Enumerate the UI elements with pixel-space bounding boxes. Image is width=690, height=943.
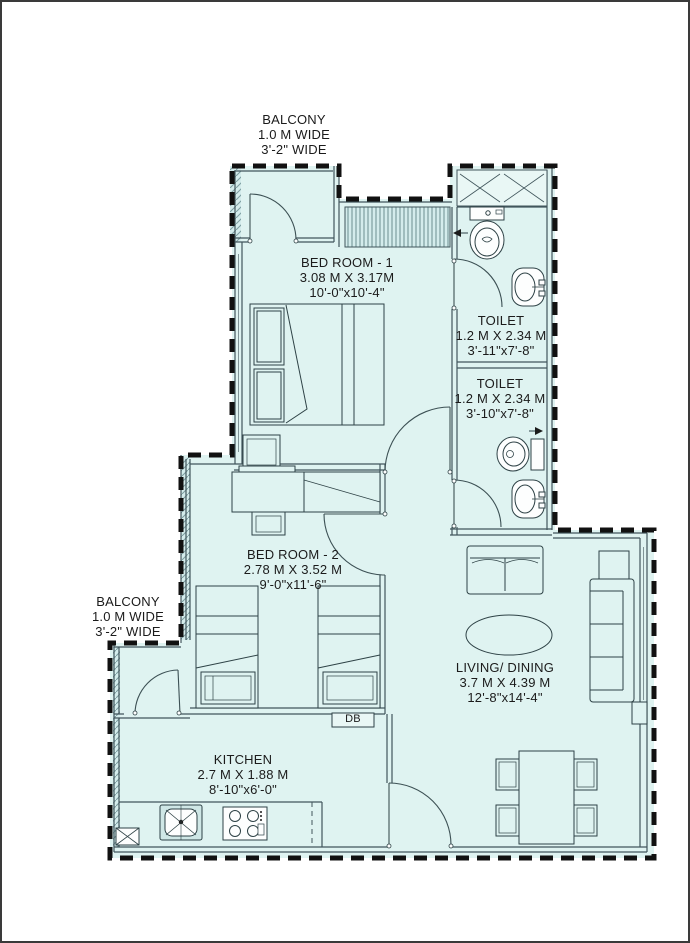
room-size-imperial: 3'-2" WIDE: [48, 624, 208, 639]
hob-icon: [223, 807, 267, 840]
dining-table: [519, 751, 574, 844]
loveseat-sofa: [467, 546, 543, 594]
room-name: TOILET: [430, 376, 570, 391]
room-size-metric: 1.2 M X 2.34 M: [431, 328, 571, 343]
room-size-imperial: 9'-0"x11'-6": [213, 577, 373, 592]
room-name: KITCHEN: [163, 752, 323, 767]
wall-ledge: [632, 702, 647, 724]
side-table: [599, 551, 629, 579]
dresser: [232, 466, 380, 512]
basin-icon-bottom: [512, 480, 545, 518]
duct-box-icon: [116, 828, 139, 845]
room-size-metric: 3.08 M X 3.17M: [267, 270, 427, 285]
kitchen-label: KITCHEN 2.7 M X 1.88 M 8'-10"x6'-0": [163, 752, 323, 797]
room-size-metric: 2.7 M X 1.88 M: [163, 767, 323, 782]
room-name: BALCONY: [48, 594, 208, 609]
basin-icon-top: [512, 268, 545, 306]
room-size-imperial: 12'-8"x14'-4": [425, 690, 585, 705]
toilet1-label: TOILET 1.2 M X 2.34 M 3'-11"x7'-8": [431, 313, 571, 358]
balcony-left-label: BALCONY 1.0 M WIDE 3'-2" WIDE: [48, 594, 208, 639]
room-size-metric: 3.7 M X 4.39 M: [425, 675, 585, 690]
bedside-table: [243, 435, 280, 469]
bedroom2-label: BED ROOM - 2 2.78 M X 3.52 M 9'-0"x11'-6…: [213, 547, 373, 592]
room-name: BED ROOM - 1: [267, 255, 427, 270]
room-name: BED ROOM - 2: [213, 547, 373, 562]
toilet2-label: TOILET 1.2 M X 2.34 M 3'-10"x7'-8": [430, 376, 570, 421]
kitchen-sink-icon: [160, 805, 202, 840]
room-size-imperial: 10'-0"x10'-4": [267, 285, 427, 300]
bedroom1-label: BED ROOM - 1 3.08 M X 3.17M 10'-0"x10'-4…: [267, 255, 427, 300]
desk-chair: [252, 512, 285, 535]
room-size-imperial: 3'-10"x7'-8": [430, 406, 570, 421]
db-label: DB: [333, 713, 373, 726]
balcony-top-label: BALCONY 1.0 M WIDE 3'-2" WIDE: [214, 112, 374, 157]
double-bed: [250, 304, 384, 425]
room-name: LIVING/ DINING: [425, 660, 585, 675]
room-size-imperial: 8'-10"x6'-0": [163, 782, 323, 797]
wardrobe: [345, 207, 450, 247]
room-size-metric: 2.78 M X 3.52 M: [213, 562, 373, 577]
living-dining-label: LIVING/ DINING 3.7 M X 4.39 M 12'-8"x14'…: [425, 660, 585, 705]
room-size-metric: 1.2 M X 2.34 M: [430, 391, 570, 406]
three-seat-sofa: [590, 579, 634, 702]
room-name: BALCONY: [214, 112, 374, 127]
room-size-imperial: 3'-11"x7'-8": [431, 343, 571, 358]
room-size-metric: 1.0 M WIDE: [214, 127, 374, 142]
single-bed-right: [318, 586, 380, 708]
room-size-metric: 1.0 M WIDE: [48, 609, 208, 624]
db-text: DB: [333, 713, 373, 726]
room-size-imperial: 3'-2" WIDE: [214, 142, 374, 157]
vent-shaft: [457, 170, 547, 206]
floor-plan: BALCONY 1.0 M WIDE 3'-2" WIDE BED ROOM -…: [0, 0, 690, 943]
room-name: TOILET: [431, 313, 571, 328]
